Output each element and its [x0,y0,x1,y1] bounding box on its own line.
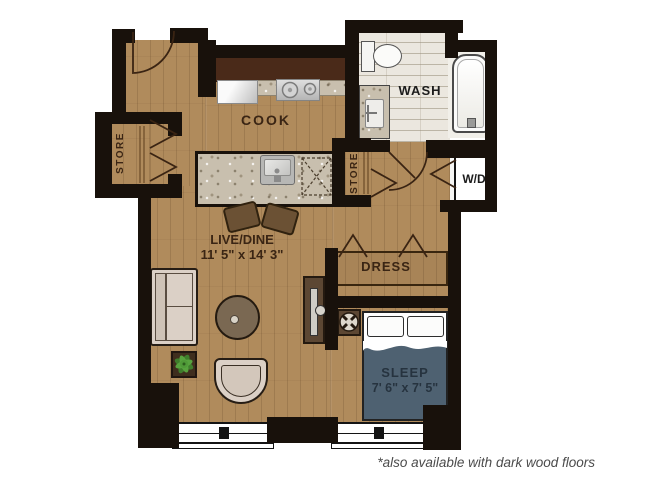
wall [485,40,497,212]
live-dine-dimensions: 11' 5" x 14' 3" [162,248,322,263]
window-mullion [374,427,384,439]
floorplan-canvas: W/D SLEEP 7' 6" x 7' 5" [0,0,650,490]
store-left-label: STORE [115,127,129,179]
round-table [215,295,260,340]
washer-dryer-label: W/D [462,173,485,187]
stove [276,79,320,101]
sofa-back [155,273,166,341]
bathtub-drain [467,118,476,128]
window-sill [172,443,274,449]
wall [168,174,182,198]
nightstand [337,309,361,336]
store-center-label: STORE [349,147,363,199]
wall [426,140,497,158]
vanity-sink [365,99,384,128]
cook-label: COOK [206,112,326,128]
tv-console [303,276,325,344]
sofa [150,268,198,346]
refrigerator [217,80,258,104]
wall [267,417,338,443]
wall [448,205,461,425]
window [177,422,269,444]
window [336,422,425,444]
wall [445,20,458,58]
wall [112,29,126,122]
wall [205,45,352,58]
toilet-bowl [373,44,402,68]
bed-pillow [407,316,444,337]
sofa-cushion [166,306,193,341]
island-sink-basin [264,159,291,176]
live-dine-label: LIVE/DINE 11' 5" x 14' 3" [162,233,322,263]
window-sill [331,443,430,449]
window-mullion [219,427,229,439]
wash-label: WASH [370,84,470,99]
plant-pot [171,351,197,378]
footnote-text: *also available with dark wood floors [300,455,595,470]
sleep-label: SLEEP [381,366,429,381]
dress-label: DRESS [338,260,434,275]
sofa-cushion [166,273,193,308]
wall [337,296,461,308]
wall [423,405,461,450]
wall [138,186,151,392]
live-dine-name: LIVE/DINE [162,233,322,248]
sleep-dimensions: 7' 6" x 7' 5" [372,381,438,395]
wall [345,20,359,152]
round-table-center [230,315,239,324]
wall [138,383,179,448]
wall [168,112,182,136]
island-sink [260,155,295,185]
bed-pillow [367,316,404,337]
armchair-seat [221,365,261,397]
